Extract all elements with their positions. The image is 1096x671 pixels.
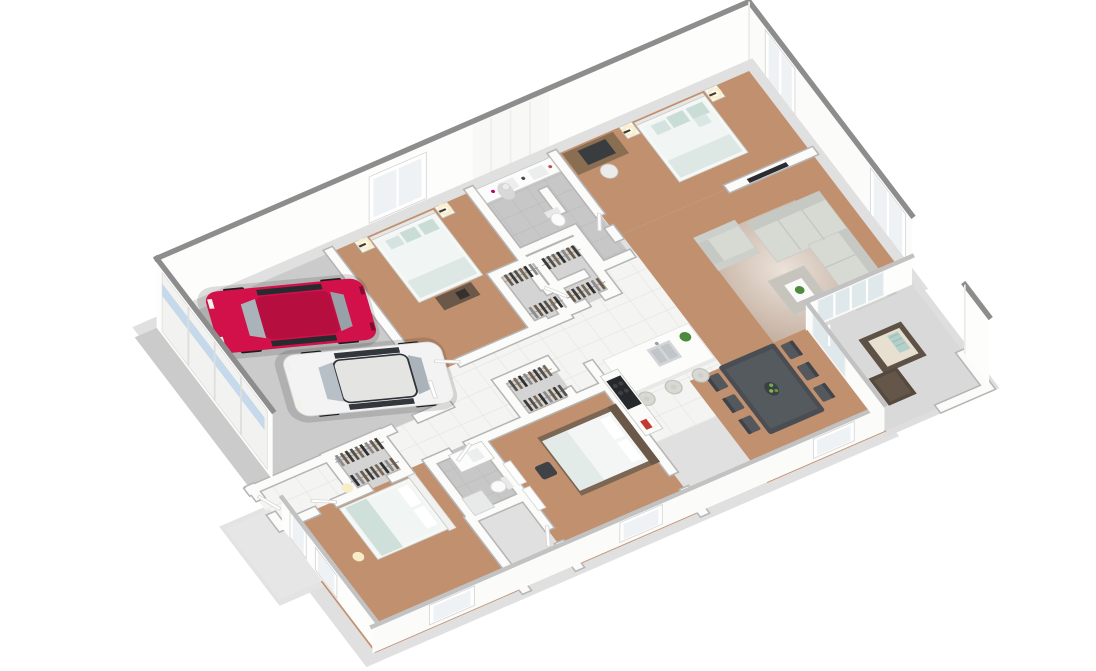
floor-plan-render: [0, 0, 1096, 671]
